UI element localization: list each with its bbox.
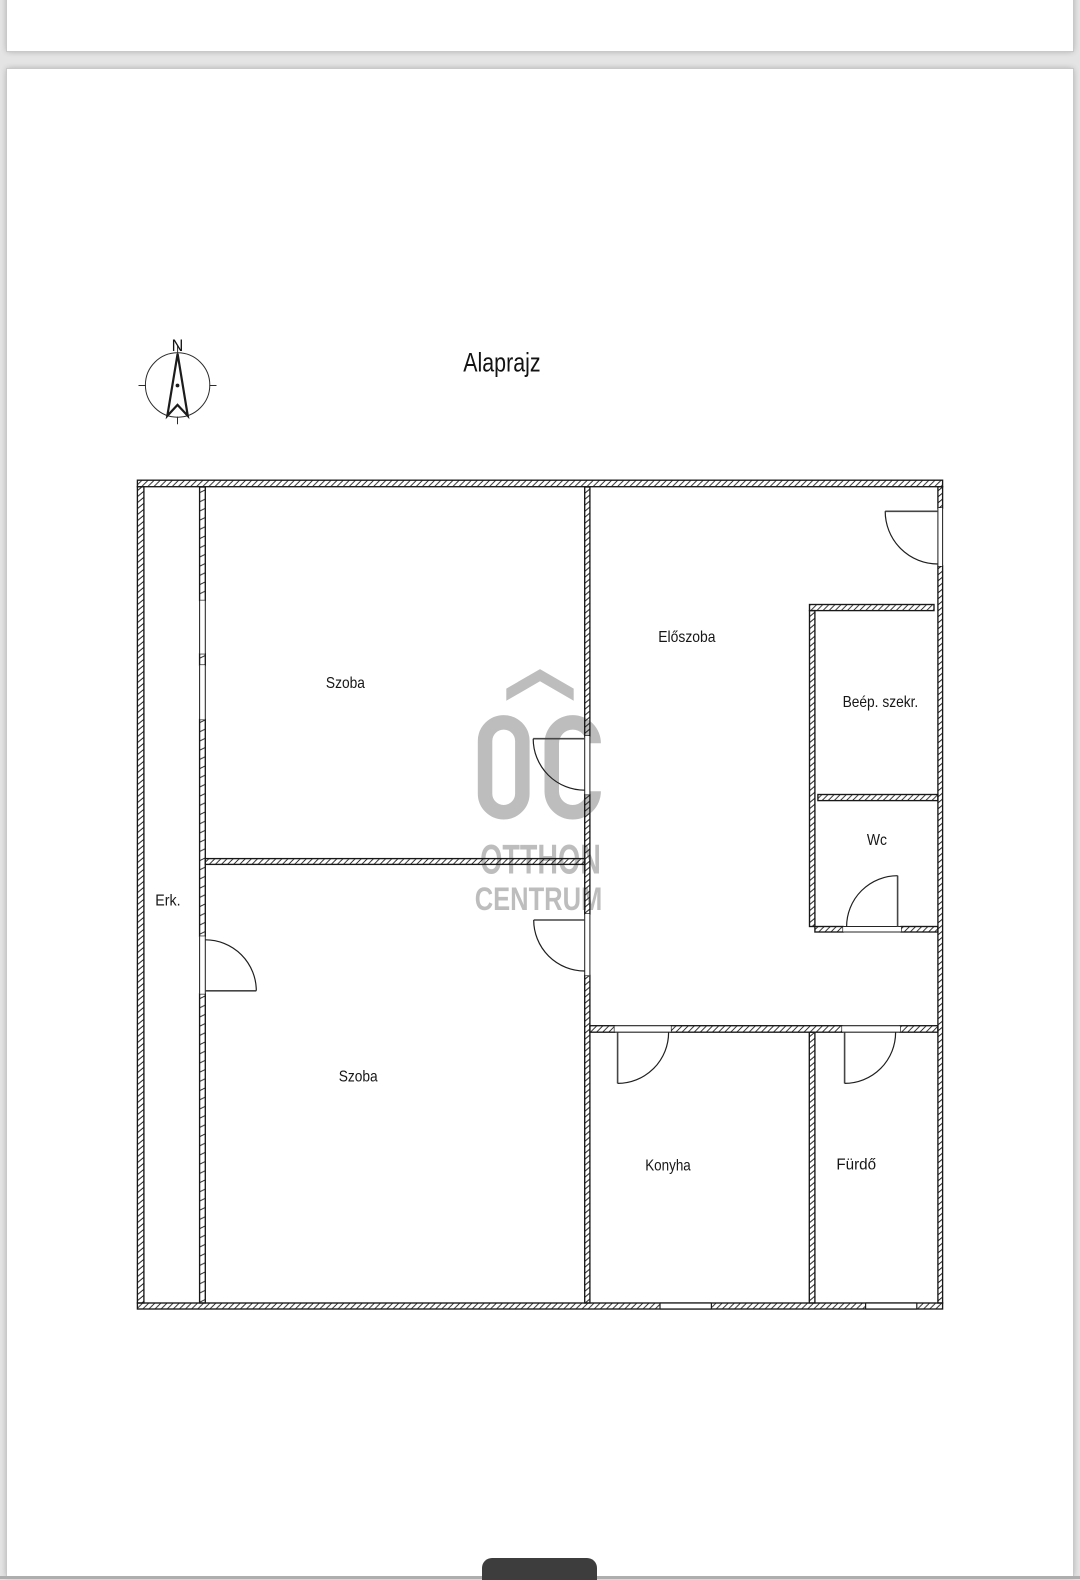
svg-text:Fürdő: Fürdő (836, 1156, 876, 1173)
svg-text:Szoba: Szoba (339, 1067, 379, 1085)
svg-text:Wc: Wc (867, 831, 888, 849)
svg-text:Beép. szekr.: Beép. szekr. (843, 693, 919, 711)
svg-text:CENTRUM: CENTRUM (475, 880, 603, 917)
svg-text:Alaprajz: Alaprajz (463, 349, 540, 379)
svg-text:Szoba: Szoba (326, 674, 366, 692)
svg-text:N: N (172, 336, 184, 355)
svg-text:Konyha: Konyha (645, 1157, 691, 1174)
svg-text:Előszoba: Előszoba (658, 628, 716, 646)
svg-text:Erk.: Erk. (155, 892, 180, 910)
